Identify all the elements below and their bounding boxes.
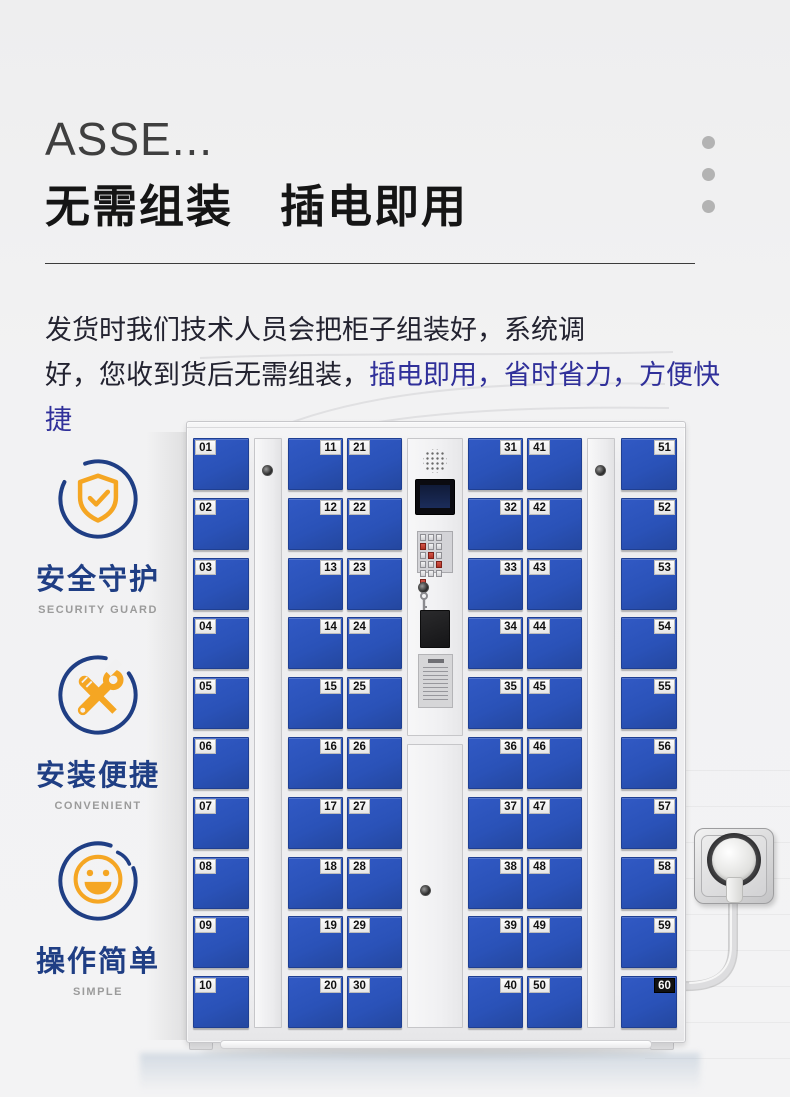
keypad-key	[436, 561, 442, 568]
keypad-key	[428, 552, 434, 559]
door-number-plate: 31	[500, 440, 521, 455]
locker-door: 29	[347, 916, 402, 968]
door-number-plate: 55	[654, 679, 675, 694]
locker-door: 30	[347, 976, 402, 1028]
locker-door: 16	[288, 737, 343, 789]
locker-door: 58	[621, 857, 677, 909]
door-number-plate: 25	[349, 679, 370, 694]
locker-door: 27	[347, 797, 402, 849]
door-number-plate: 48	[529, 859, 550, 874]
locker-door: 53	[621, 558, 677, 610]
keypad	[417, 531, 453, 573]
locker-door: 47	[527, 797, 582, 849]
locker-door: 04	[193, 617, 249, 669]
door-number-plate: 57	[654, 799, 675, 814]
door-number-plate: 50	[529, 978, 550, 993]
door-number-plate: 06	[195, 739, 216, 754]
door-number-plate: 47	[529, 799, 550, 814]
locker-door: 50	[527, 976, 582, 1028]
locker-door: 01	[193, 438, 249, 490]
keypad-key	[420, 543, 426, 550]
locker-door: 03	[193, 558, 249, 610]
locker-door: 32	[468, 498, 523, 550]
locker-door: 06	[193, 737, 249, 789]
door-number-plate: 24	[349, 619, 370, 634]
power-plug	[712, 838, 756, 882]
locker-door: 23	[347, 558, 402, 610]
locker-door: 18	[288, 857, 343, 909]
locker-door: 10	[193, 976, 249, 1028]
door-number-plate: 26	[349, 739, 370, 754]
smart-locker-cabinet: 0102030405060708091011121314151617181920…	[186, 421, 686, 1043]
door-number-plate: 41	[529, 440, 550, 455]
locker-door: 31	[468, 438, 523, 490]
door-number-plate: 19	[320, 918, 341, 933]
locker-door: 15	[288, 677, 343, 729]
locker-door: 60	[621, 976, 677, 1028]
door-number-plate: 21	[349, 440, 370, 455]
door-number-plate: 09	[195, 918, 216, 933]
locker-door: 42	[527, 498, 582, 550]
locker-door: 54	[621, 617, 677, 669]
display-screen	[415, 479, 455, 515]
door-number-plate: 30	[349, 978, 370, 993]
locker-door: 24	[347, 617, 402, 669]
door-number-plate: 22	[349, 500, 370, 515]
keypad-key	[428, 561, 434, 568]
door-number-plate: 38	[500, 859, 521, 874]
locker-door: 51	[621, 438, 677, 490]
locker-door: 22	[347, 498, 402, 550]
service-door	[407, 744, 463, 1028]
keypad-key	[428, 570, 434, 577]
door-number-plate: 60	[654, 978, 675, 993]
door-number-plate: 32	[500, 500, 521, 515]
locker-door: 28	[347, 857, 402, 909]
card-reader-panel	[420, 610, 450, 648]
locker-door: 36	[468, 737, 523, 789]
door-number-plate: 02	[195, 500, 216, 515]
locker-door: 25	[347, 677, 402, 729]
locker-door: 20	[288, 976, 343, 1028]
locker-door: 57	[621, 797, 677, 849]
door-number-plate: 54	[654, 619, 675, 634]
control-panel	[407, 438, 463, 736]
locker-door: 09	[193, 916, 249, 968]
product-detail-image: ASSE... 无需组装 插电即用 发货时我们技术人员会把柜子组装好，系统调 好…	[0, 0, 790, 1097]
door-number-plate: 23	[349, 560, 370, 575]
locker-door: 33	[468, 558, 523, 610]
door-number-plate: 28	[349, 859, 370, 874]
door-number-plate: 11	[320, 440, 341, 455]
locker-door: 43	[527, 558, 582, 610]
instruction-sticker	[418, 654, 453, 708]
door-number-plate: 37	[500, 799, 521, 814]
locker-door: 52	[621, 498, 677, 550]
door-number-plate: 14	[320, 619, 341, 634]
door-number-plate: 51	[654, 440, 675, 455]
locker-door: 14	[288, 617, 343, 669]
door-number-plate: 01	[195, 440, 216, 455]
locker-door: 34	[468, 617, 523, 669]
side-panel	[254, 438, 282, 1028]
locker-door: 12	[288, 498, 343, 550]
keypad-key	[428, 534, 434, 541]
keypad-key	[428, 543, 434, 550]
door-number-plate: 03	[195, 560, 216, 575]
locker-door: 17	[288, 797, 343, 849]
door-number-plate: 40	[500, 978, 521, 993]
door-number-plate: 53	[654, 560, 675, 575]
door-number-plate: 39	[500, 918, 521, 933]
door-number-plate: 43	[529, 560, 550, 575]
door-number-plate: 42	[529, 500, 550, 515]
door-number-plate: 04	[195, 619, 216, 634]
side-panel	[587, 438, 615, 1028]
keyhole-icon	[420, 885, 431, 896]
door-number-plate: 58	[654, 859, 675, 874]
locker-door: 21	[347, 438, 402, 490]
door-number-plate: 10	[195, 978, 216, 993]
keypad-key	[436, 543, 442, 550]
door-number-plate: 59	[654, 918, 675, 933]
locker-door: 35	[468, 677, 523, 729]
door-number-plate: 12	[320, 500, 341, 515]
locker-door: 26	[347, 737, 402, 789]
door-number-plate: 36	[500, 739, 521, 754]
locker-door: 02	[193, 498, 249, 550]
door-number-plate: 34	[500, 619, 521, 634]
door-number-plate: 46	[529, 739, 550, 754]
locker-door: 05	[193, 677, 249, 729]
locker-door: 19	[288, 916, 343, 968]
keypad-key	[420, 570, 426, 577]
door-number-plate: 08	[195, 859, 216, 874]
locker-door: 49	[527, 916, 582, 968]
door-number-plate: 16	[320, 739, 341, 754]
door-number-plate: 07	[195, 799, 216, 814]
door-number-plate: 44	[529, 619, 550, 634]
keypad-key	[436, 534, 442, 541]
keyhole-icon	[595, 465, 606, 476]
door-number-plate: 33	[500, 560, 521, 575]
door-number-plate: 35	[500, 679, 521, 694]
door-number-plate: 49	[529, 918, 550, 933]
locker-door: 37	[468, 797, 523, 849]
keypad-key	[420, 552, 426, 559]
door-number-plate: 45	[529, 679, 550, 694]
locker-door: 07	[193, 797, 249, 849]
locker-door: 48	[527, 857, 582, 909]
locker-door: 41	[527, 438, 582, 490]
door-number-plate: 05	[195, 679, 216, 694]
door-number-plate: 15	[320, 679, 341, 694]
hanging-key-icon	[419, 592, 429, 612]
locker-door: 39	[468, 916, 523, 968]
locker-door: 45	[527, 677, 582, 729]
keyhole-icon	[262, 465, 273, 476]
door-number-plate: 13	[320, 560, 341, 575]
keypad-key	[436, 552, 442, 559]
locker-door: 59	[621, 916, 677, 968]
locker-door: 40	[468, 976, 523, 1028]
power-socket	[694, 828, 774, 904]
locker-door: 38	[468, 857, 523, 909]
cabinet-base	[220, 1040, 652, 1049]
door-number-plate: 52	[654, 500, 675, 515]
door-number-plate: 29	[349, 918, 370, 933]
door-number-plate: 18	[320, 859, 341, 874]
locker-door: 55	[621, 677, 677, 729]
plug-neck	[726, 877, 743, 903]
keypad-key	[436, 570, 442, 577]
door-number-plate: 56	[654, 739, 675, 754]
locker-door: 46	[527, 737, 582, 789]
door-number-plate: 20	[320, 978, 341, 993]
keypad-key	[420, 561, 426, 568]
door-number-plate: 27	[349, 799, 370, 814]
locker-door: 08	[193, 857, 249, 909]
locker-door: 13	[288, 558, 343, 610]
locker-door: 44	[527, 617, 582, 669]
keypad-key	[420, 534, 426, 541]
door-number-plate: 17	[320, 799, 341, 814]
locker-door: 11	[288, 438, 343, 490]
speaker-grille-icon	[423, 449, 447, 473]
locker-door: 56	[621, 737, 677, 789]
